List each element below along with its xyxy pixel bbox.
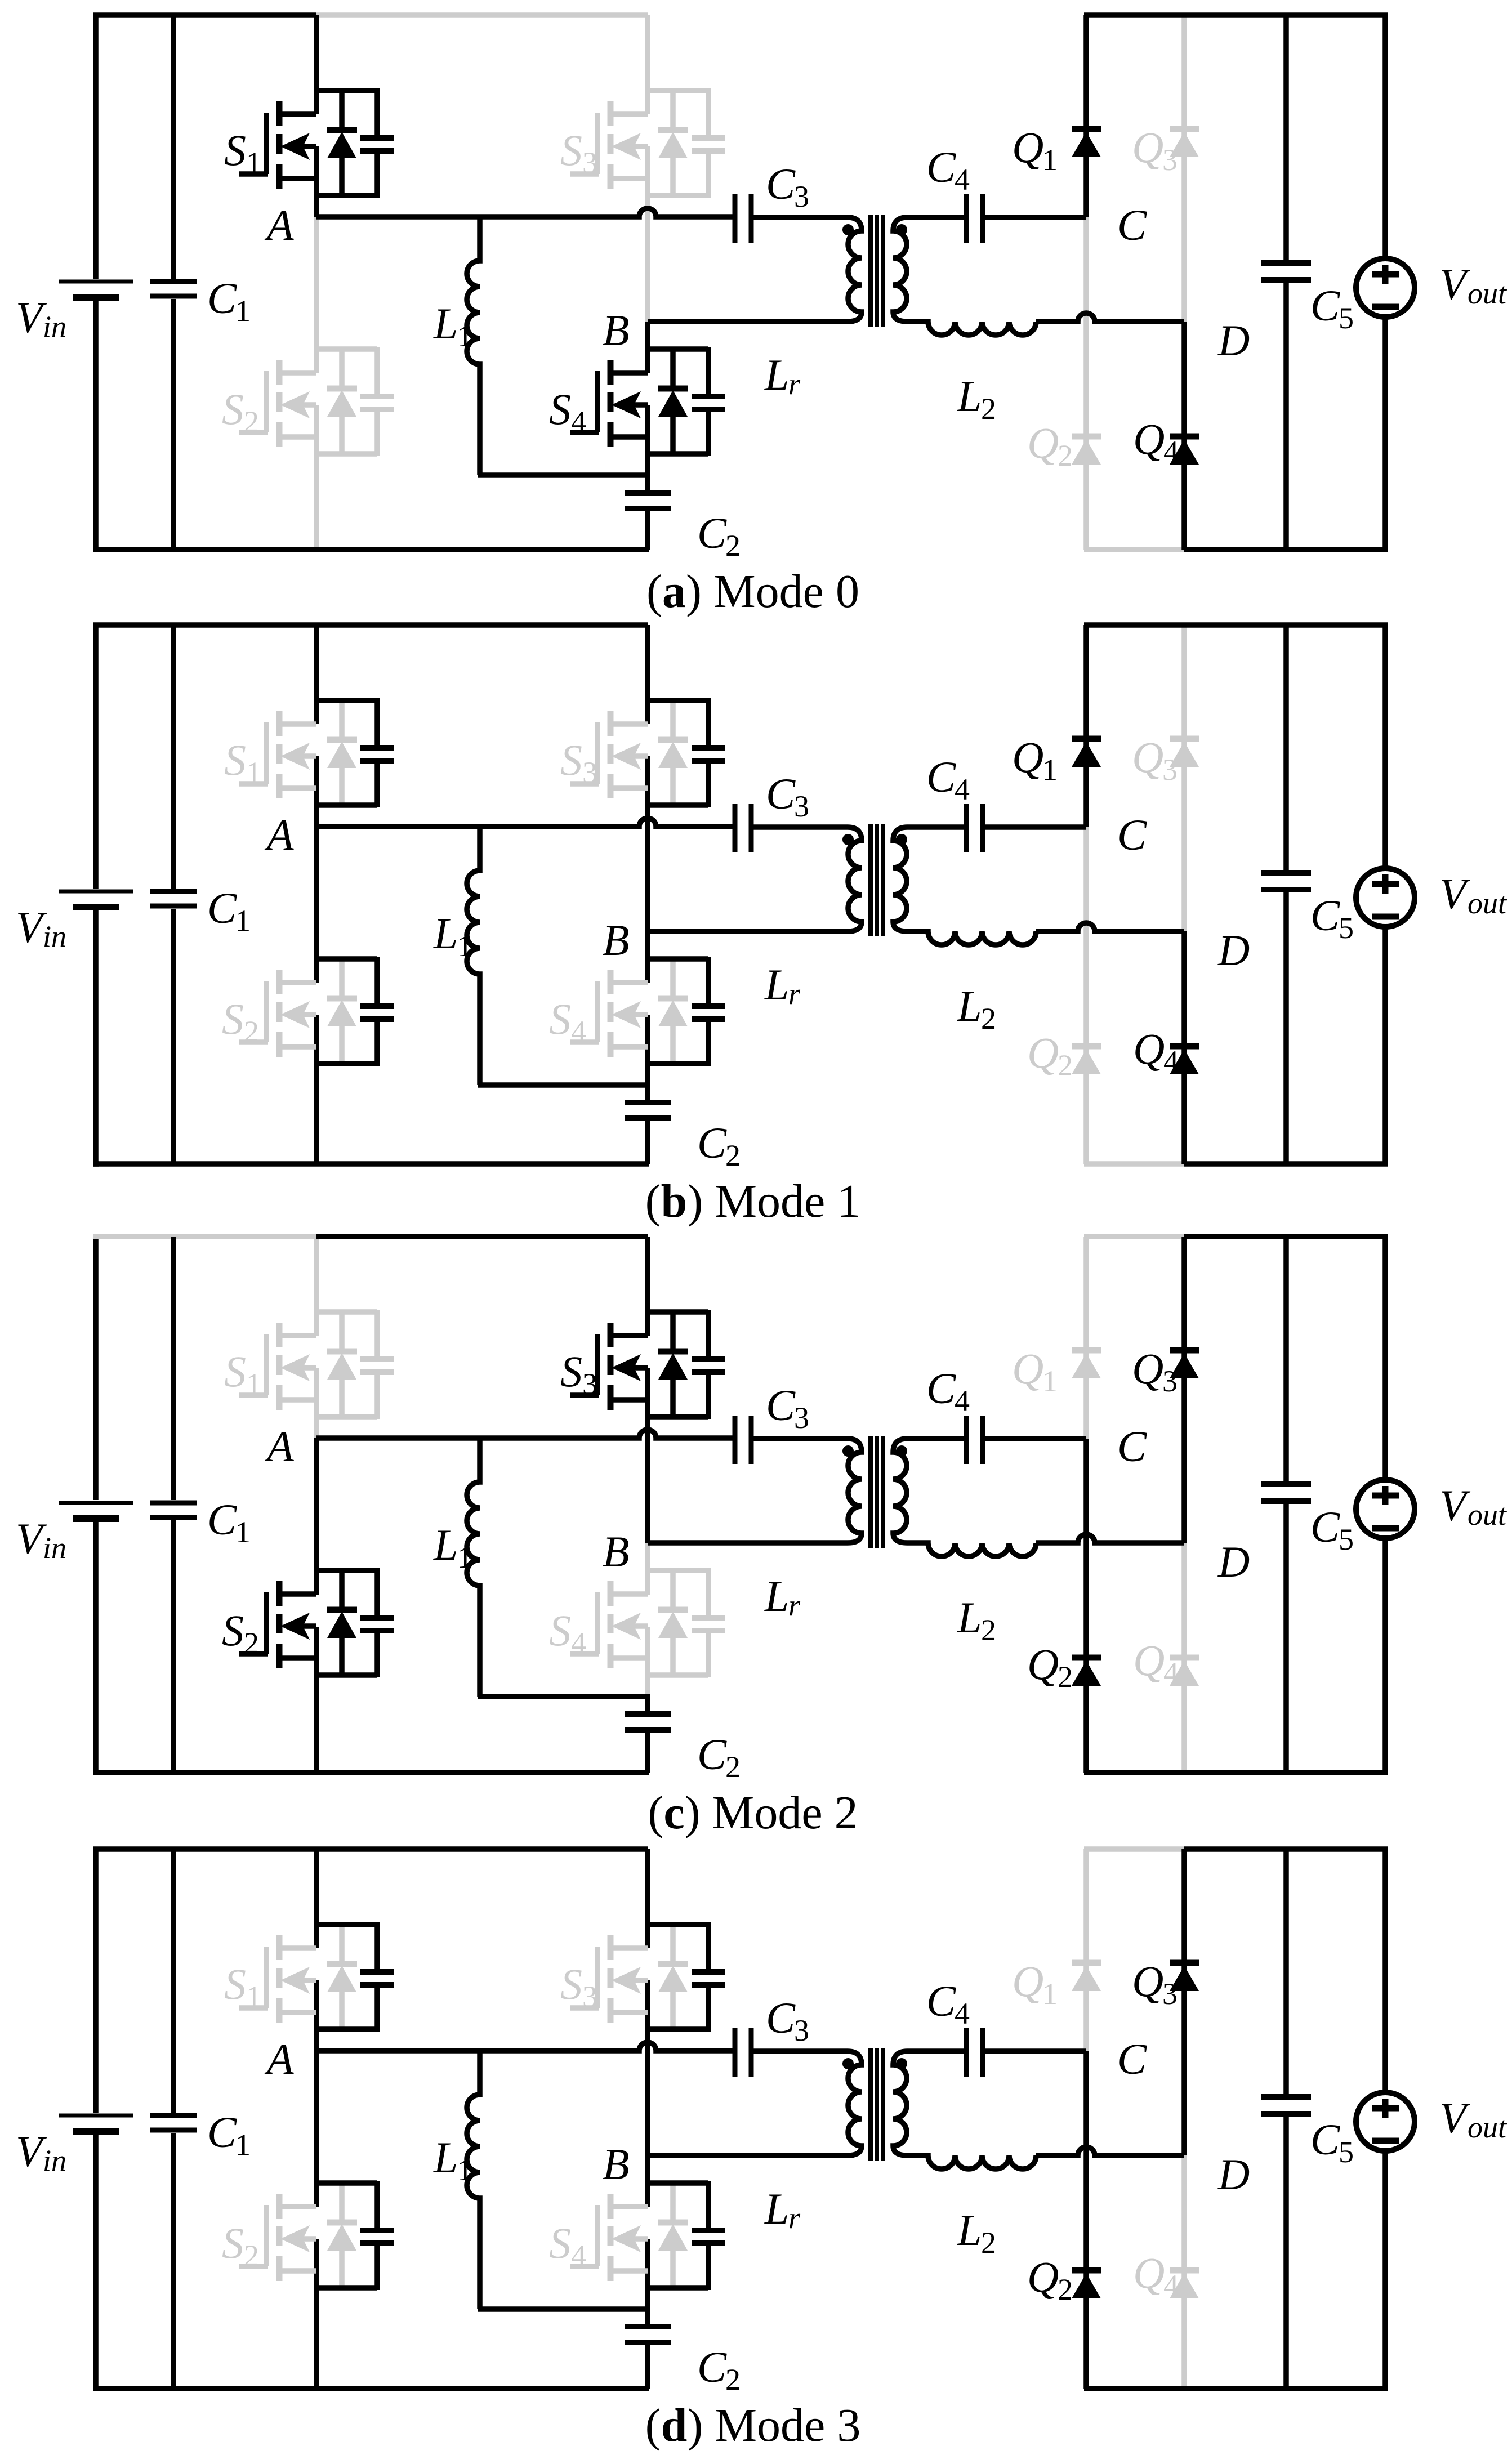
svg-text:1: 1 xyxy=(1042,1364,1058,1398)
svg-text:S: S xyxy=(224,1959,246,2008)
svg-text:S: S xyxy=(549,385,571,434)
svg-text:2: 2 xyxy=(1058,1660,1073,1694)
svg-text:D: D xyxy=(1217,316,1250,365)
svg-text:r: r xyxy=(788,1588,801,1622)
svg-text:S: S xyxy=(560,735,582,784)
svg-text:in: in xyxy=(43,2144,66,2177)
svg-text:C: C xyxy=(697,508,727,557)
svg-text:4: 4 xyxy=(955,163,970,197)
svg-text:1: 1 xyxy=(235,904,251,938)
svg-text:L: L xyxy=(957,372,982,421)
svg-text:D: D xyxy=(1217,1537,1250,1586)
svg-text:C: C xyxy=(207,883,237,932)
svg-text:(d) Mode 3: (d) Mode 3 xyxy=(645,2399,861,2452)
svg-text:1: 1 xyxy=(457,319,472,353)
svg-text:Q: Q xyxy=(1132,1344,1163,1393)
svg-text:C: C xyxy=(697,2342,727,2391)
svg-text:V: V xyxy=(1439,869,1471,918)
svg-text:1: 1 xyxy=(457,1541,472,1574)
svg-text:1: 1 xyxy=(1042,1977,1058,2011)
svg-text:2: 2 xyxy=(244,1626,259,1660)
svg-text:V: V xyxy=(1439,1481,1471,1530)
svg-text:out: out xyxy=(1468,1498,1507,1532)
svg-text:5: 5 xyxy=(1339,911,1354,945)
svg-text:L: L xyxy=(433,299,458,348)
svg-text:r: r xyxy=(788,367,801,401)
svg-text:Q: Q xyxy=(1133,414,1165,463)
svg-text:4: 4 xyxy=(1163,1044,1179,1078)
svg-text:(b) Mode 1: (b) Mode 1 xyxy=(645,1175,861,1227)
svg-text:C: C xyxy=(766,1993,796,2042)
svg-text:1: 1 xyxy=(235,294,251,328)
svg-text:(a) Mode 0: (a) Mode 0 xyxy=(646,565,859,618)
svg-text:out: out xyxy=(1468,2110,1507,2144)
svg-text:A: A xyxy=(264,200,294,249)
svg-text:L: L xyxy=(433,1520,458,1569)
svg-text:2: 2 xyxy=(725,2363,741,2396)
svg-text:4: 4 xyxy=(571,1626,586,1660)
svg-text:3: 3 xyxy=(1162,1364,1178,1398)
svg-text:in: in xyxy=(43,919,66,953)
svg-text:Q: Q xyxy=(1012,733,1043,782)
svg-text:C: C xyxy=(1117,200,1147,249)
svg-text:r: r xyxy=(788,2201,801,2235)
svg-text:C: C xyxy=(766,1381,796,1430)
svg-text:Q: Q xyxy=(1027,1640,1059,1689)
svg-text:C: C xyxy=(207,274,237,323)
svg-text:Q: Q xyxy=(1027,418,1059,467)
svg-text:C: C xyxy=(1117,1422,1147,1471)
svg-text:3: 3 xyxy=(582,1367,597,1401)
svg-text:in: in xyxy=(43,310,66,343)
svg-text:(c) Mode 2: (c) Mode 2 xyxy=(648,1787,858,1839)
svg-text:1: 1 xyxy=(246,146,261,180)
svg-text:1: 1 xyxy=(1042,143,1058,177)
svg-text:L: L xyxy=(764,2184,789,2233)
svg-text:V: V xyxy=(1439,260,1471,309)
svg-text:1: 1 xyxy=(1042,753,1058,787)
svg-text:3: 3 xyxy=(794,180,809,213)
svg-text:L: L xyxy=(764,350,789,399)
svg-text:2: 2 xyxy=(981,2226,996,2260)
svg-text:out: out xyxy=(1468,276,1507,310)
svg-text:2: 2 xyxy=(981,1002,996,1035)
svg-text:C: C xyxy=(1310,2115,1340,2164)
svg-text:S: S xyxy=(549,994,571,1043)
svg-text:L: L xyxy=(764,1572,789,1621)
svg-text:3: 3 xyxy=(794,2014,809,2047)
svg-text:D: D xyxy=(1217,2150,1250,2199)
svg-text:Q: Q xyxy=(1012,1957,1043,2006)
svg-text:4: 4 xyxy=(1163,435,1179,468)
svg-text:Q: Q xyxy=(1012,123,1043,172)
svg-text:C: C xyxy=(697,1730,727,1779)
svg-text:1: 1 xyxy=(457,929,472,963)
svg-text:Q: Q xyxy=(1027,2252,1059,2301)
svg-text:4: 4 xyxy=(955,1384,970,1418)
svg-text:B: B xyxy=(603,2140,630,2189)
svg-text:V: V xyxy=(1439,2093,1471,2142)
svg-text:Q: Q xyxy=(1012,1344,1043,1393)
svg-text:S: S xyxy=(222,994,244,1043)
svg-text:S: S xyxy=(222,2219,244,2267)
svg-text:S: S xyxy=(560,1347,582,1396)
svg-text:S: S xyxy=(222,385,244,434)
svg-text:L: L xyxy=(433,909,458,958)
svg-text:3: 3 xyxy=(1162,753,1178,787)
svg-text:A: A xyxy=(264,1422,294,1471)
svg-text:B: B xyxy=(603,1527,630,1576)
svg-text:S: S xyxy=(222,1606,244,1655)
svg-text:C: C xyxy=(207,2108,237,2157)
svg-text:2: 2 xyxy=(725,529,741,563)
svg-text:A: A xyxy=(264,2034,294,2083)
svg-text:Q: Q xyxy=(1133,2248,1165,2297)
svg-text:C: C xyxy=(1117,810,1147,859)
svg-text:3: 3 xyxy=(1162,143,1178,177)
svg-text:1: 1 xyxy=(235,1515,251,1549)
svg-text:1: 1 xyxy=(457,2153,472,2187)
svg-text:2: 2 xyxy=(981,392,996,426)
svg-text:B: B xyxy=(603,306,630,355)
svg-text:4: 4 xyxy=(1163,1656,1179,1690)
svg-text:L: L xyxy=(433,2133,458,2182)
svg-text:2: 2 xyxy=(1058,439,1073,472)
svg-text:S: S xyxy=(560,1959,582,2008)
svg-text:C: C xyxy=(766,159,796,208)
svg-text:C: C xyxy=(1310,891,1340,940)
svg-text:Q: Q xyxy=(1132,123,1163,172)
svg-text:3: 3 xyxy=(582,146,597,180)
svg-text:L: L xyxy=(957,981,982,1030)
svg-text:S: S xyxy=(560,126,582,175)
svg-text:4: 4 xyxy=(1163,2269,1179,2302)
svg-text:Q: Q xyxy=(1132,733,1163,782)
svg-text:Q: Q xyxy=(1133,1636,1165,1685)
svg-text:5: 5 xyxy=(1339,1523,1354,1556)
svg-text:C: C xyxy=(926,1364,956,1413)
svg-text:2: 2 xyxy=(725,1750,741,1784)
svg-text:A: A xyxy=(264,810,294,859)
svg-text:1: 1 xyxy=(235,2128,251,2162)
svg-text:L: L xyxy=(957,2206,982,2255)
svg-text:C: C xyxy=(926,752,956,801)
svg-text:C: C xyxy=(926,142,956,191)
svg-text:2: 2 xyxy=(1058,1048,1073,1082)
svg-text:5: 5 xyxy=(1339,2135,1354,2169)
svg-text:C: C xyxy=(1310,1502,1340,1551)
svg-text:r: r xyxy=(788,977,801,1011)
svg-text:B: B xyxy=(603,916,630,965)
svg-text:C: C xyxy=(1310,281,1340,330)
svg-text:3: 3 xyxy=(794,789,809,823)
svg-text:C: C xyxy=(766,769,796,818)
svg-text:2: 2 xyxy=(725,1139,741,1172)
svg-text:C: C xyxy=(926,1976,956,2025)
svg-text:4: 4 xyxy=(955,1997,970,2030)
svg-text:2: 2 xyxy=(981,1613,996,1647)
svg-text:C: C xyxy=(1117,2034,1147,2083)
svg-text:D: D xyxy=(1217,926,1250,975)
svg-text:2: 2 xyxy=(244,405,259,439)
svg-text:4: 4 xyxy=(571,405,586,439)
svg-text:S: S xyxy=(549,1606,571,1655)
svg-text:3: 3 xyxy=(1162,1977,1178,2011)
svg-text:1: 1 xyxy=(246,1367,261,1401)
svg-text:L: L xyxy=(957,1593,982,1642)
svg-text:2: 2 xyxy=(1058,2273,1073,2306)
svg-text:Q: Q xyxy=(1133,1024,1165,1073)
svg-text:4: 4 xyxy=(955,773,970,806)
svg-text:out: out xyxy=(1468,886,1507,920)
svg-text:C: C xyxy=(697,1118,727,1167)
svg-text:S: S xyxy=(224,1347,246,1396)
svg-text:Q: Q xyxy=(1027,1028,1059,1077)
svg-text:C: C xyxy=(207,1495,237,1544)
svg-text:in: in xyxy=(43,1531,66,1565)
svg-text:S: S xyxy=(224,735,246,784)
svg-text:S: S xyxy=(549,2219,571,2267)
svg-text:L: L xyxy=(764,960,789,1009)
svg-text:S: S xyxy=(224,126,246,175)
svg-text:5: 5 xyxy=(1339,301,1354,335)
svg-text:Q: Q xyxy=(1132,1957,1163,2006)
svg-text:3: 3 xyxy=(794,1401,809,1435)
